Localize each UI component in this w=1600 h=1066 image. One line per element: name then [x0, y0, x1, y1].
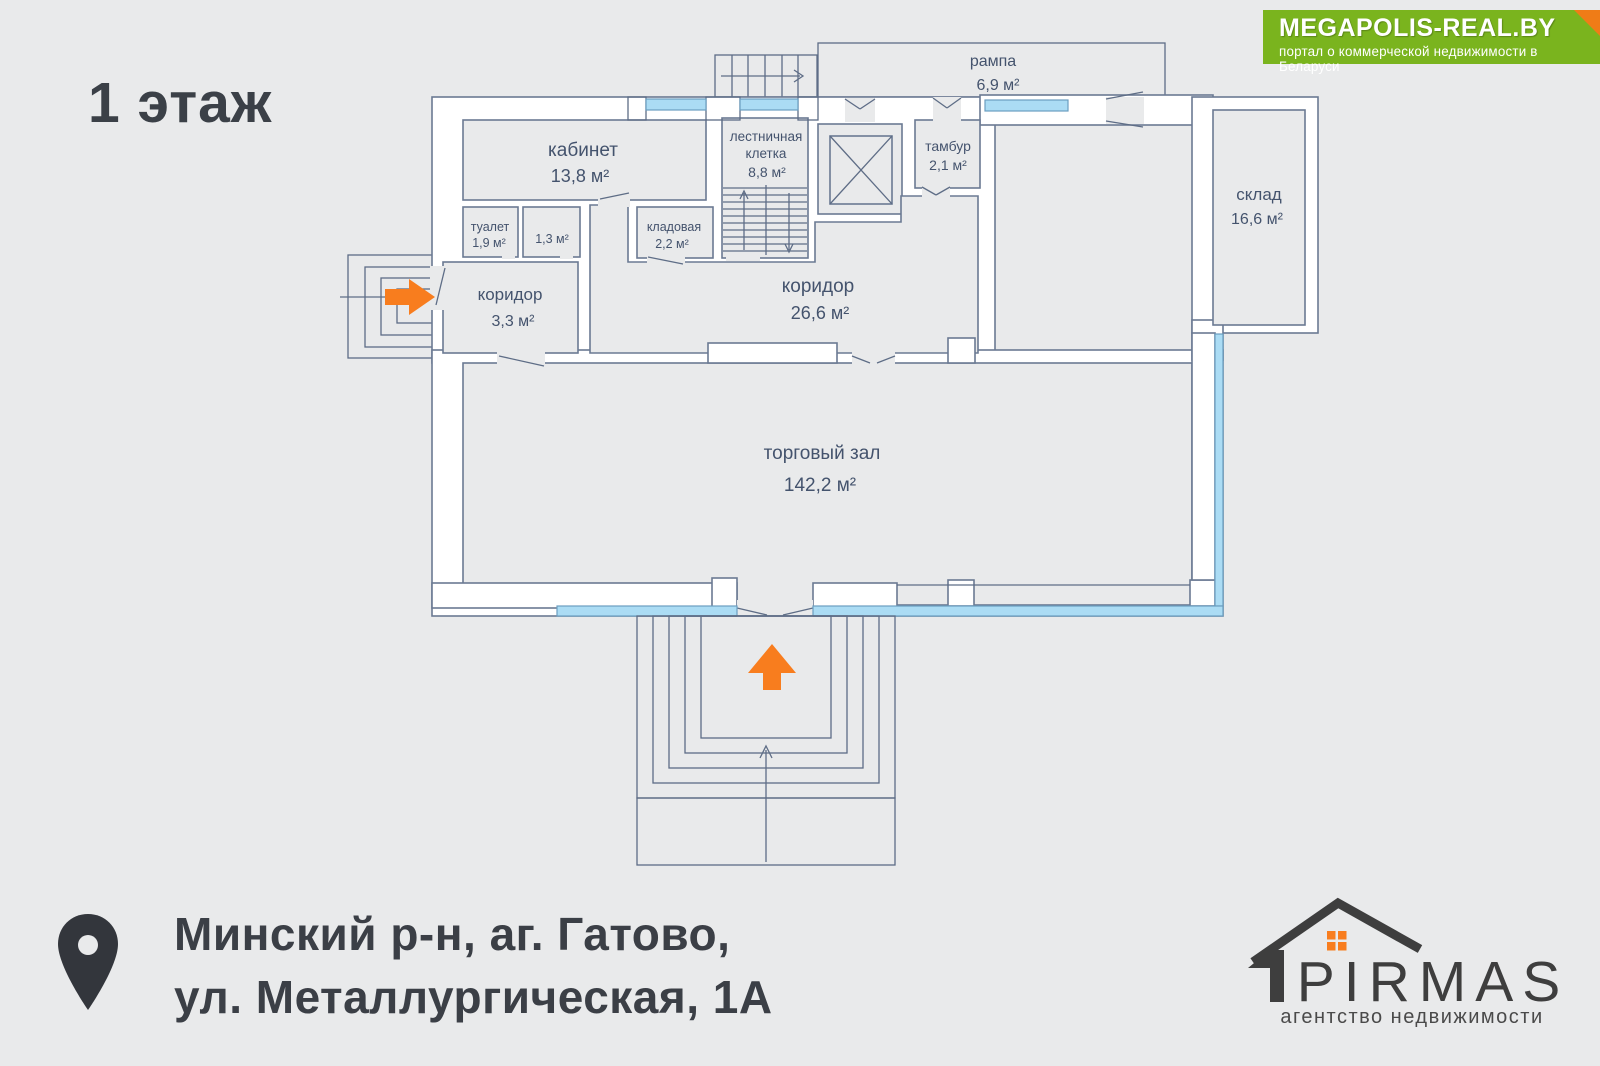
- window-bottom-2: [813, 606, 1223, 616]
- svg-text:1,9 м²: 1,9 м²: [472, 236, 506, 250]
- label-koridor-big: коридор: [782, 276, 855, 297]
- label-stairwell: лестничная: [730, 129, 803, 144]
- location-pin-icon: [58, 914, 118, 1010]
- label-tualet: туалет: [471, 220, 510, 234]
- page: кабинет 13,8 м² туалет 1,9 м² 1,3 м² кла…: [0, 0, 1600, 1066]
- address-line-2: ул. Металлургическая, 1А: [174, 966, 773, 1029]
- portal-banner: MEGAPOLIS-REAL.BY портал о коммерческой …: [1263, 10, 1600, 64]
- label-rampa: рампа: [970, 53, 1016, 70]
- svg-text:142,2 м²: 142,2 м²: [784, 475, 856, 496]
- svg-text:3,3 м²: 3,3 м²: [491, 313, 535, 330]
- window-top-1: [646, 99, 706, 110]
- svg-text:клетка: клетка: [746, 146, 787, 161]
- window-ramp: [985, 100, 1068, 111]
- portal-banner-subtitle: портал о коммерческой недвижимости в Бел…: [1279, 44, 1600, 74]
- agency-logo: PIRMAS агентство недвижимости: [1248, 903, 1569, 1028]
- lift-shaft: [830, 136, 892, 204]
- label-sklad: склад: [1236, 185, 1282, 204]
- svg-text:6,9 м²: 6,9 м²: [976, 77, 1020, 94]
- label-kabinet: кабинет: [548, 140, 618, 161]
- room-koridor-small: [443, 262, 578, 353]
- logo-window-icon: [1327, 931, 1347, 951]
- svg-text:13,8 м²: 13,8 м²: [551, 166, 609, 186]
- window-right: [1215, 334, 1223, 606]
- svg-text:2,2 м²: 2,2 м²: [655, 237, 689, 251]
- portal-banner-title: MEGAPOLIS-REAL.BY: [1279, 15, 1600, 43]
- agency-name: PIRMAS: [1297, 950, 1570, 1014]
- address-block: Минский р-н, аг. Гатово, ул. Металлургич…: [174, 903, 773, 1029]
- room-tambur: [915, 120, 980, 188]
- agency-tagline: агентство недвижимости: [1280, 1006, 1543, 1028]
- label-tambur: тамбур: [925, 138, 971, 154]
- svg-text:8,8 м²: 8,8 м²: [748, 164, 786, 180]
- address-line-1: Минский р-н, аг. Гатово,: [174, 903, 773, 966]
- label-koridor-small: коридор: [478, 285, 543, 304]
- label-1-3: 1,3 м²: [535, 232, 569, 246]
- label-kladovaya: кладовая: [647, 220, 701, 234]
- top-exterior-stairs: [715, 55, 817, 97]
- svg-text:16,6 м²: 16,6 м²: [1231, 211, 1284, 228]
- window-bottom-1: [557, 606, 737, 616]
- label-torgovy-zal: торговый зал: [764, 443, 881, 464]
- floor-title: 1 этаж: [88, 70, 272, 136]
- logo-one-icon: [1270, 950, 1284, 1002]
- window-top-2: [740, 99, 798, 110]
- svg-text:26,6 м²: 26,6 м²: [791, 303, 849, 323]
- svg-text:2,1 м²: 2,1 м²: [929, 157, 967, 173]
- entrance-arrow-bottom-icon: [748, 644, 796, 690]
- entrance-arrow-left-icon: [385, 279, 435, 315]
- banner-fold-icon: [1574, 10, 1600, 36]
